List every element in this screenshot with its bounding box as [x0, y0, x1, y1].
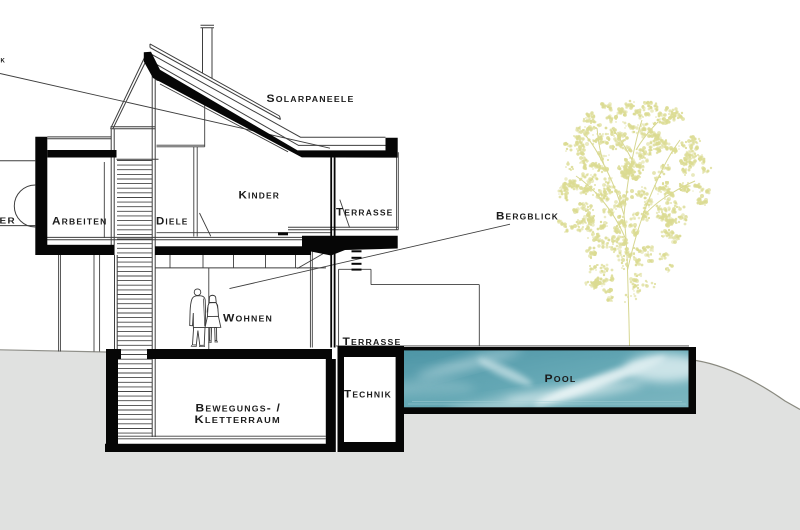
svg-text:Technik: Technik [344, 389, 392, 401]
svg-text:Wohnen: Wohnen [223, 313, 273, 325]
svg-text:Solarpaneele: Solarpaneele [267, 93, 355, 105]
svg-text:Kletterraum: Kletterraum [195, 414, 282, 426]
svg-text:Kinder: Kinder [239, 190, 281, 202]
svg-text:k: k [1, 55, 6, 65]
svg-text:Pool: Pool [545, 373, 577, 385]
svg-text:Bewegungs- /: Bewegungs- / [196, 403, 282, 415]
svg-text:Bergblick: Bergblick [496, 211, 559, 223]
svg-text:Arbeiten: Arbeiten [52, 216, 108, 228]
svg-text:Terrasse: Terrasse [336, 207, 394, 219]
svg-text:Terrasse: Terrasse [343, 336, 402, 348]
svg-text:er: er [0, 215, 16, 227]
svg-text:Diele: Diele [156, 215, 189, 227]
